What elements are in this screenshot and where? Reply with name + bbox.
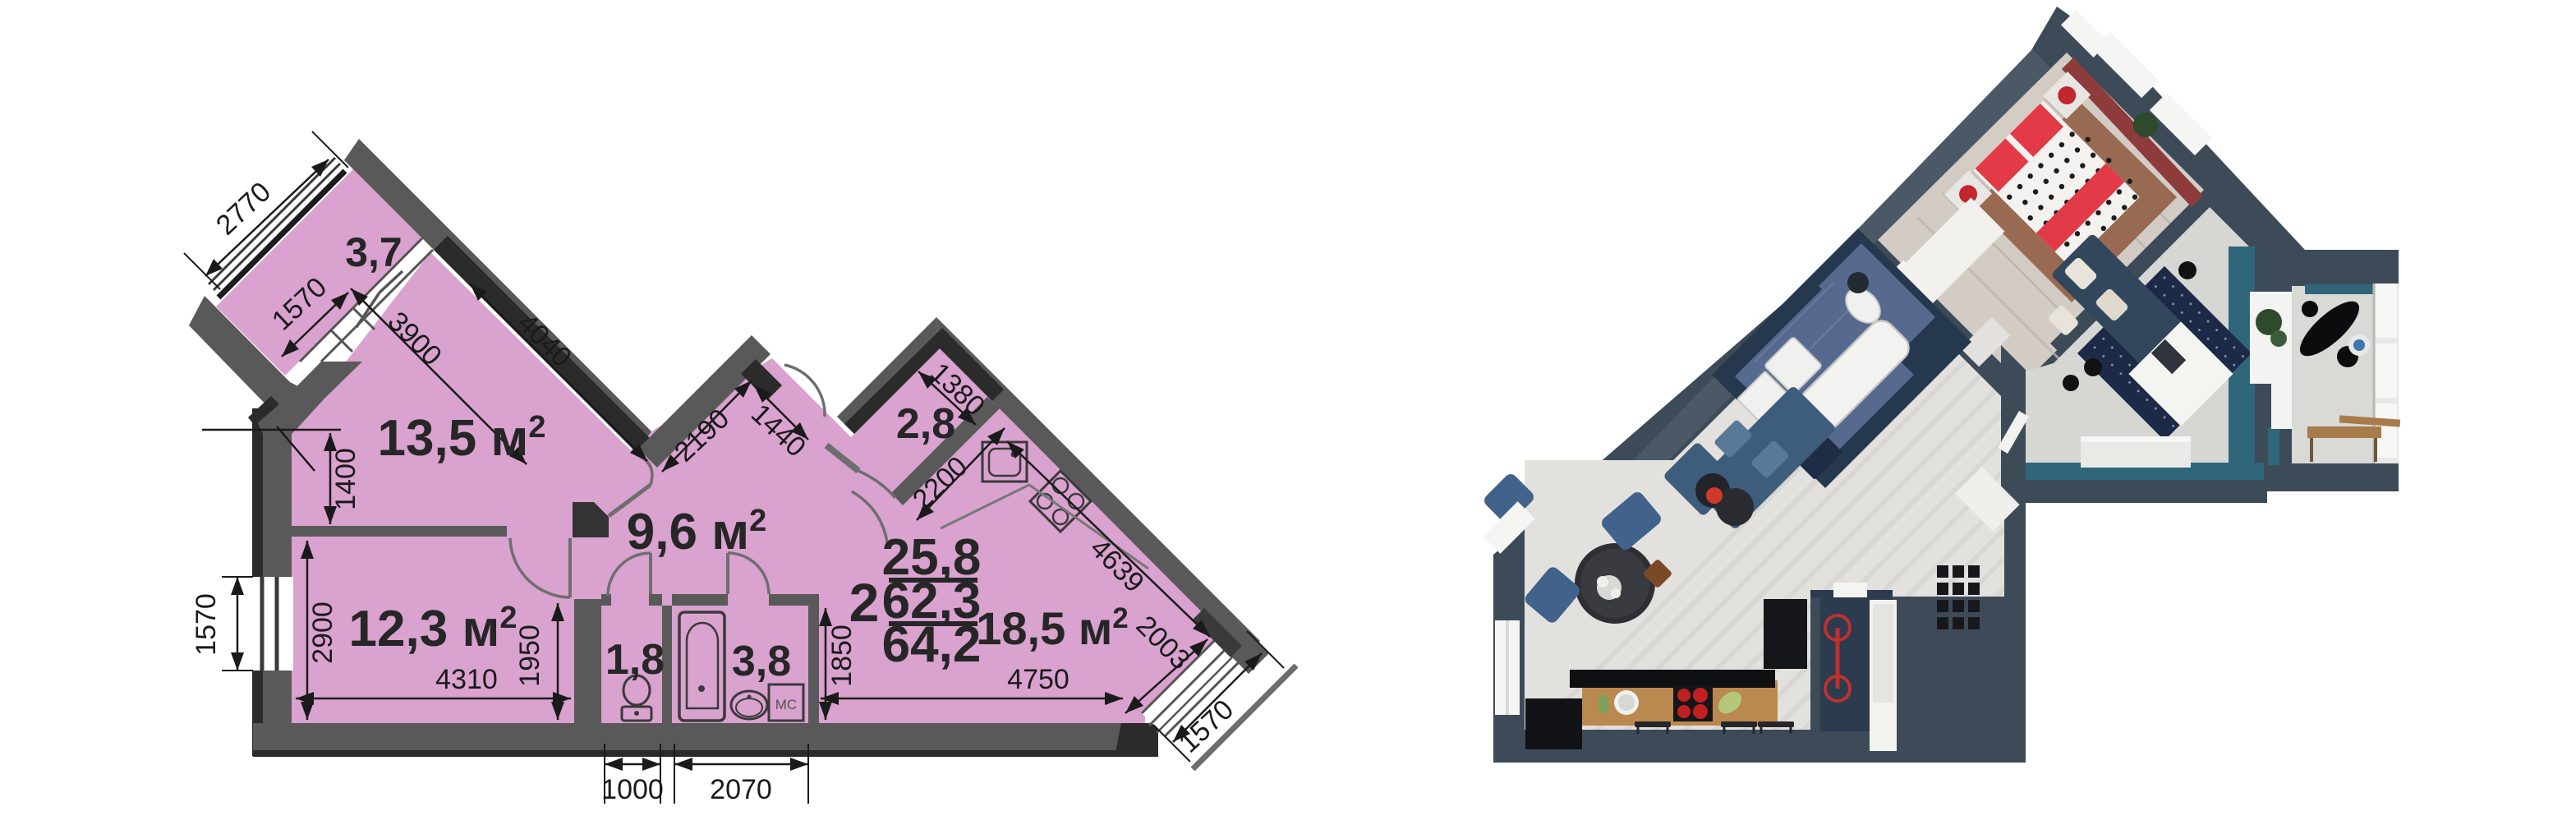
svg-text:12,3 м2: 12,3 м2 <box>349 601 517 657</box>
svg-text:18,5 м2: 18,5 м2 <box>976 602 1128 654</box>
svg-text:1000: 1000 <box>601 774 664 805</box>
svg-text:МС: МС <box>775 697 797 712</box>
svg-text:2070: 2070 <box>710 774 772 805</box>
svg-text:2,8: 2,8 <box>896 400 955 448</box>
svg-text:13,5 м2: 13,5 м2 <box>378 410 546 467</box>
svg-text:1570: 1570 <box>191 593 222 656</box>
svg-text:4310: 4310 <box>435 664 498 695</box>
svg-text:3,8: 3,8 <box>732 638 791 685</box>
svg-text:1950: 1950 <box>514 625 545 687</box>
svg-text:1400: 1400 <box>330 448 361 510</box>
svg-text:1,8: 1,8 <box>605 636 665 684</box>
svg-text:1850: 1850 <box>826 625 858 687</box>
svg-text:3,7: 3,7 <box>345 229 402 275</box>
svg-text:2: 2 <box>849 572 880 633</box>
svg-text:2900: 2900 <box>307 601 338 664</box>
svg-text:9,6 м2: 9,6 м2 <box>627 504 766 560</box>
svg-text:4750: 4750 <box>1007 664 1069 695</box>
